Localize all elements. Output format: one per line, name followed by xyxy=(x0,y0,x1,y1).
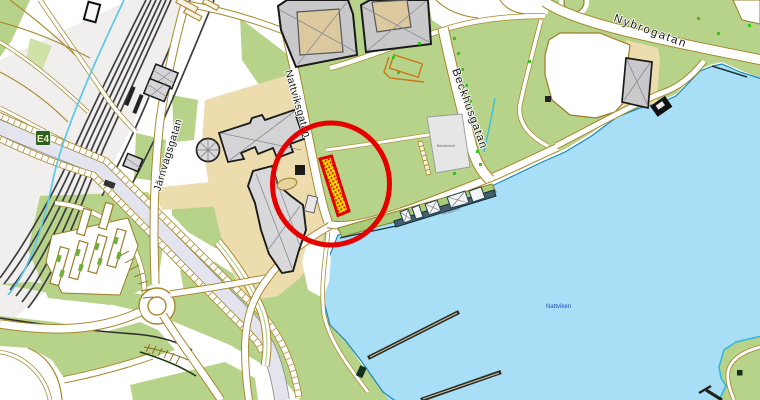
svg-text:Nattviken: Nattviken xyxy=(546,304,571,310)
svg-text:E4: E4 xyxy=(37,134,50,145)
svg-text:Beckbruket: Beckbruket xyxy=(437,144,455,148)
